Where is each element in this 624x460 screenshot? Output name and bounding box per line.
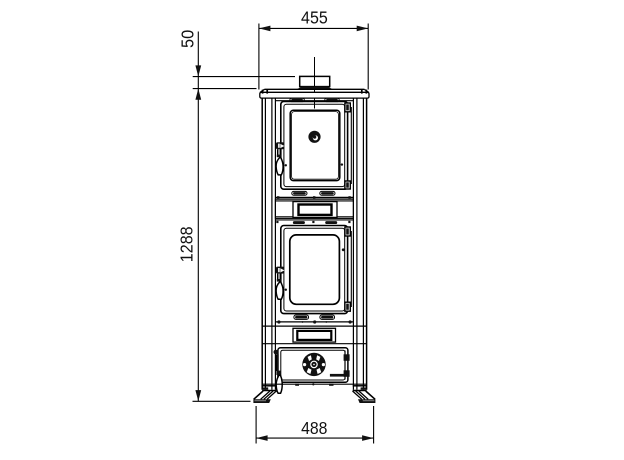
svg-text:455: 455	[301, 7, 328, 27]
svg-text:1288: 1288	[177, 226, 197, 262]
svg-text:488: 488	[301, 418, 327, 438]
svg-text:50: 50	[178, 30, 198, 48]
